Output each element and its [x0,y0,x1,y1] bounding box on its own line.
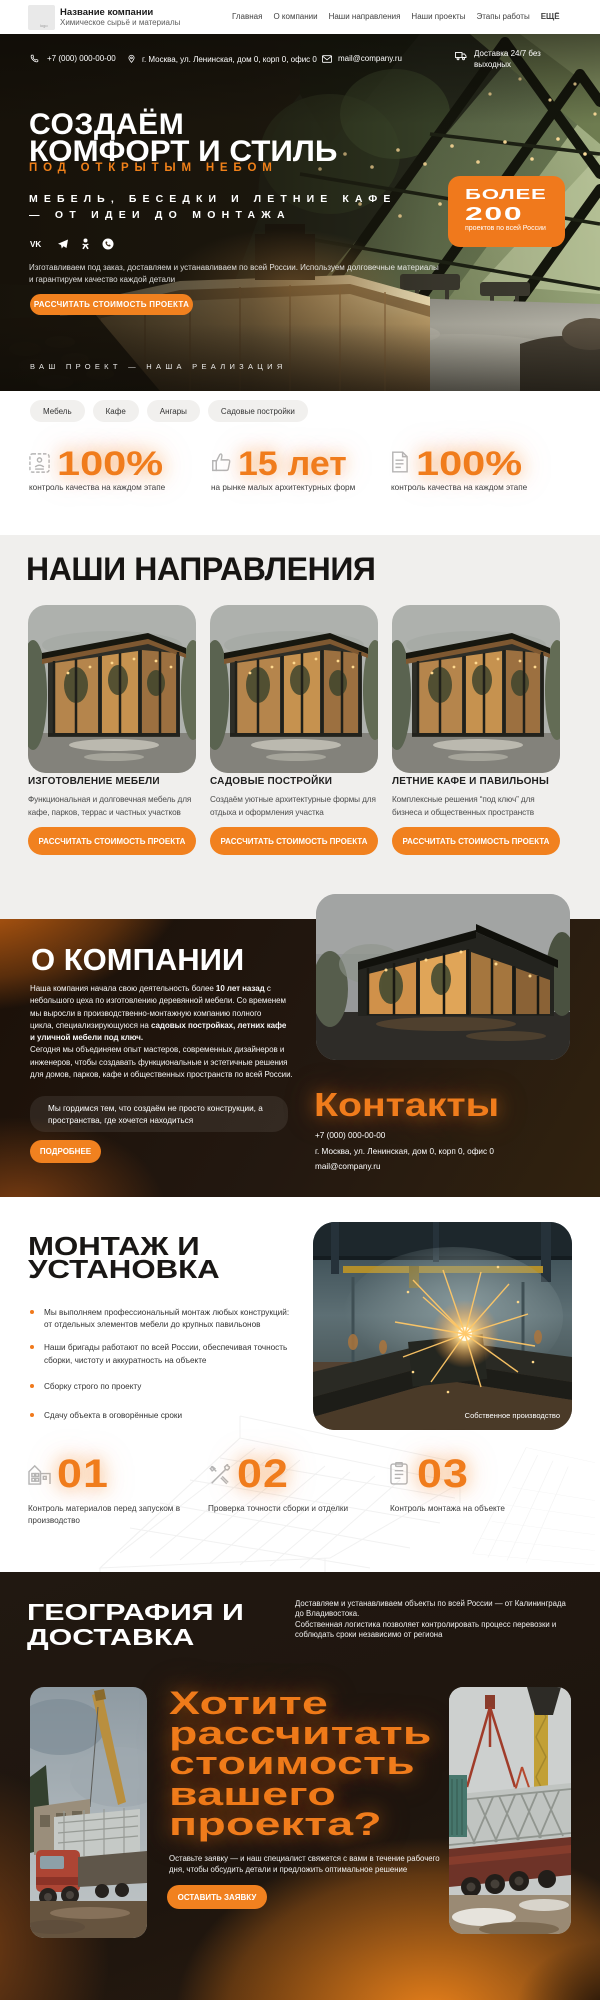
svg-text:VK: VK [30,240,41,249]
